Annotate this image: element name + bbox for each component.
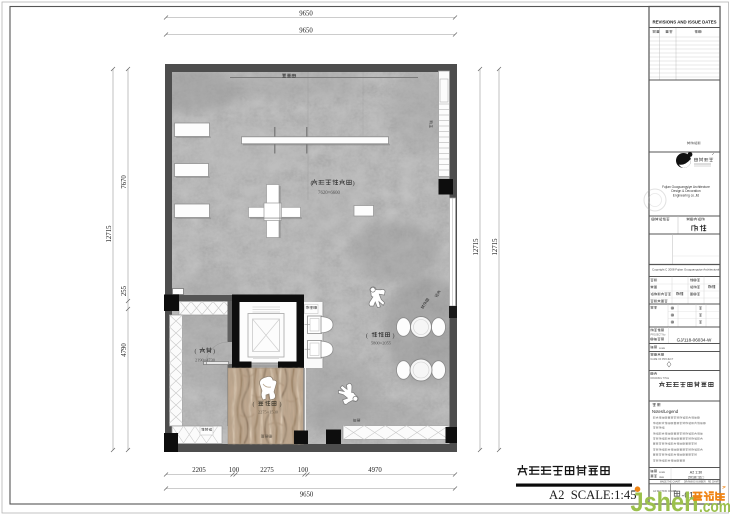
svg-text:100: 100 [229,467,240,474]
svg-text:9650: 9650 [299,28,313,35]
svg-text:5800×2055: 5800×2055 [371,341,392,346]
svg-text:100: 100 [298,467,309,474]
svg-text:): ) [213,348,215,355]
svg-text:PROJECT No: PROJECT No [651,334,667,337]
svg-text:scale: scale [659,470,666,474]
svg-text:A2 SCALE:1:45: A2 SCALE:1:45 [549,488,636,502]
svg-text:Notes/Legend: Notes/Legend [652,409,679,414]
svg-text:REVISIONS AND ISSUE DATES: REVISIONS AND ISSUE DATES [653,20,717,25]
svg-text:date: date [659,475,665,479]
svg-text:9650: 9650 [300,492,314,499]
svg-text:A2 1:30: A2 1:30 [690,471,702,475]
svg-text:(: ( [195,348,197,355]
svg-text:255: 255 [121,285,128,296]
svg-text:2190×4730: 2190×4730 [195,358,216,363]
svg-text:): ) [353,180,355,187]
svg-text:9650: 9650 [299,11,313,18]
svg-text:DRAWING TITLE: DRAWING TITLE [651,377,670,380]
svg-text:Copyright C 2008 Fujian Guogua: Copyright C 2008 Fujian Guoguangyiye Arc… [652,268,720,272]
svg-text:.com: .com [699,497,730,515]
svg-text:(: ( [253,401,255,408]
svg-text:2275×1530: 2275×1530 [258,410,279,415]
svg-text:2275: 2275 [260,467,274,474]
svg-text:NAME OF PROJECT: NAME OF PROJECT [651,358,674,361]
svg-text:GJ/118-06034-W: GJ/118-06034-W [677,338,712,343]
svg-text:): ) [393,332,395,339]
svg-text:12715: 12715 [473,238,480,256]
svg-text:2205: 2205 [192,467,206,474]
svg-text:): ) [280,401,282,408]
svg-text:7670: 7670 [121,175,128,189]
svg-text:7620×6600: 7620×6600 [318,191,340,196]
svg-text:scale: scale [659,346,666,350]
svg-text:12715: 12715 [106,225,113,243]
svg-text:4790: 4790 [121,343,128,357]
svg-text:12715: 12715 [492,238,499,256]
svg-text:Engineering co.,ltd: Engineering co.,ltd [673,193,700,197]
svg-text:Jsheh: Jsheh [631,487,699,515]
svg-text:(: ( [311,180,313,187]
svg-text:DRAWING NUMBER: DRAWING NUMBER [684,481,706,484]
svg-text:RE CHART: RE CHART [708,481,720,484]
svg-text:2018□11□: 2018□11□ [688,476,705,480]
svg-text:(: ( [366,332,368,339]
svg-text:MADE THE CHART: MADE THE CHART [660,481,681,484]
svg-text:4970: 4970 [368,467,382,474]
